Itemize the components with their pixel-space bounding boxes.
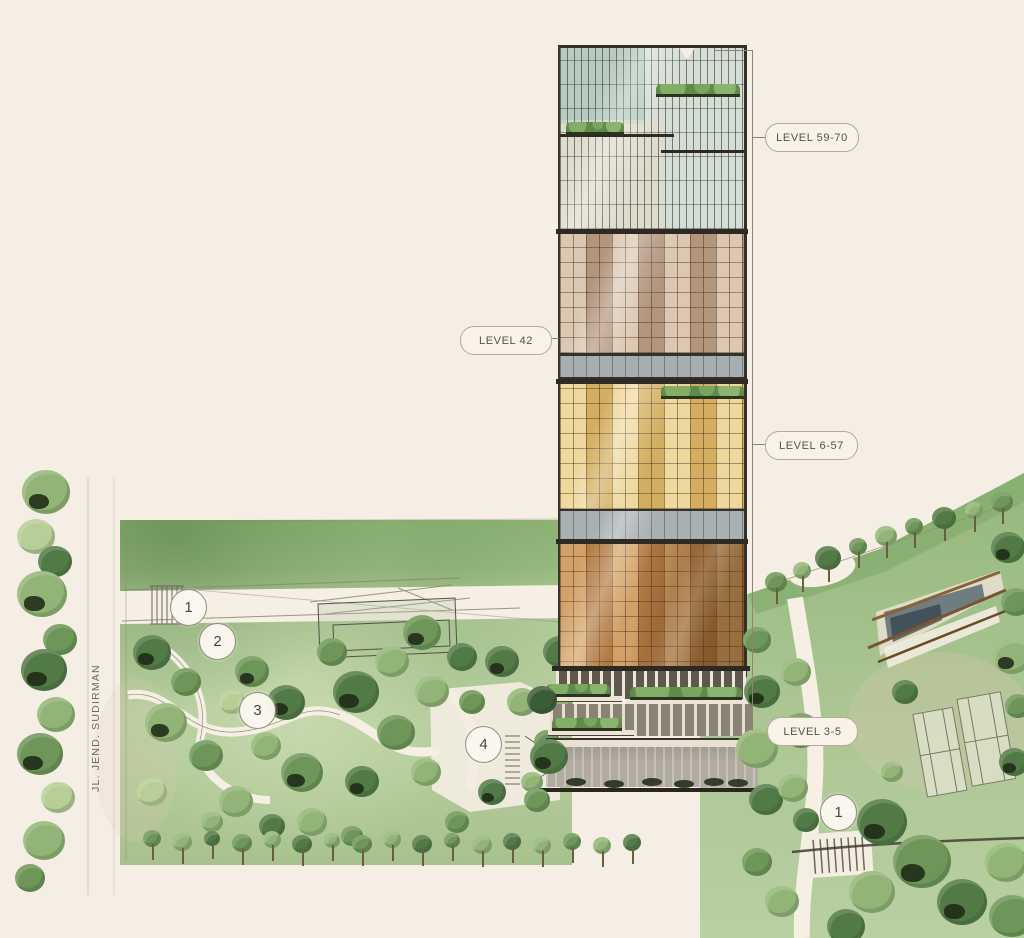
tree — [563, 833, 581, 850]
tree — [781, 658, 811, 686]
sky-terrace-planter — [566, 122, 625, 135]
tree — [472, 836, 492, 854]
tree — [849, 871, 895, 913]
site-marker-2: 2 — [199, 623, 236, 660]
roof-notch — [678, 46, 696, 60]
tree — [17, 571, 67, 617]
tree — [999, 748, 1024, 776]
tree — [412, 835, 432, 853]
tree — [403, 615, 441, 650]
tree — [447, 643, 477, 671]
tree — [1005, 694, 1024, 718]
sky-terrace-planter — [661, 386, 744, 399]
dimension-line — [714, 50, 752, 51]
tree — [383, 831, 401, 848]
tree — [459, 690, 485, 714]
tree — [17, 733, 63, 775]
tree — [778, 774, 808, 802]
tree — [251, 732, 281, 760]
tower-mechanical-band — [560, 509, 744, 539]
tree — [881, 762, 903, 782]
tree — [281, 753, 323, 792]
tree — [875, 526, 897, 546]
tree — [133, 635, 171, 670]
tree — [892, 680, 918, 704]
tree — [297, 808, 327, 836]
tennis-courts — [912, 692, 1016, 797]
shrub — [604, 780, 624, 788]
tree — [993, 639, 1024, 674]
tree — [232, 834, 252, 852]
shrub — [704, 778, 724, 786]
tree — [857, 799, 907, 845]
tree — [991, 532, 1024, 563]
tree — [23, 821, 65, 860]
tree — [985, 843, 1024, 882]
tree — [849, 538, 867, 555]
dimension-line — [752, 50, 753, 730]
shrub — [566, 778, 586, 786]
tower-podium — [546, 666, 758, 792]
callout-level-42: LEVEL 42 — [460, 326, 552, 355]
tree — [292, 835, 312, 853]
tree — [743, 627, 771, 653]
tree — [991, 492, 1013, 512]
tree — [411, 758, 441, 786]
callout-level-59-70: LEVEL 59-70 — [765, 123, 859, 152]
tree — [352, 835, 372, 853]
tree — [893, 835, 951, 888]
tree — [21, 649, 67, 691]
tree — [765, 572, 787, 592]
pavilion — [868, 570, 1008, 668]
tower — [558, 45, 747, 677]
tree — [143, 830, 161, 847]
tree — [793, 808, 819, 832]
tree — [172, 833, 192, 851]
tree — [444, 833, 460, 848]
site-marker-1b: 1 — [820, 794, 857, 831]
tree — [533, 837, 551, 854]
tree — [815, 546, 841, 570]
tree — [965, 502, 983, 519]
tree — [333, 671, 379, 713]
callout-level-3-5: LEVEL 3-5 — [767, 717, 858, 746]
tree — [445, 811, 469, 833]
sky-terrace-planter — [656, 84, 741, 97]
tree — [623, 834, 641, 851]
tree — [932, 507, 956, 529]
site-marker-1: 1 — [170, 589, 207, 626]
callout-level-6-57: LEVEL 6-57 — [765, 431, 858, 460]
illustration-canvas: LEVEL 59-70 LEVEL 42 LEVEL 6-57 LEVEL 3-… — [0, 0, 1024, 938]
site-marker-4: 4 — [465, 726, 502, 763]
tree — [22, 470, 70, 514]
tree — [263, 831, 281, 848]
tower-mechanical-band — [560, 353, 744, 379]
podium-planter — [630, 687, 742, 700]
tree — [15, 864, 45, 892]
shrub — [642, 778, 662, 786]
tree — [171, 668, 201, 696]
tree — [527, 686, 557, 714]
tree — [793, 562, 811, 579]
tower-mid-section — [560, 384, 744, 509]
tree — [201, 812, 223, 832]
tower-lower-section — [560, 544, 744, 677]
tree — [530, 739, 568, 774]
tree — [937, 879, 987, 925]
podium-planter — [552, 718, 622, 731]
tree — [317, 638, 347, 666]
tower-upper-section — [560, 234, 744, 353]
tree — [478, 779, 506, 805]
tree — [593, 837, 611, 854]
site-marker-3: 3 — [239, 692, 276, 729]
tree — [905, 518, 923, 535]
tree — [37, 697, 75, 732]
tree — [204, 831, 220, 846]
tree — [377, 715, 415, 750]
tree — [503, 833, 521, 850]
shrub — [674, 780, 694, 788]
shrub — [728, 779, 748, 787]
tree — [145, 703, 187, 742]
leader-line-6-57 — [752, 444, 765, 445]
tree — [742, 848, 772, 876]
leader-line-59-70 — [752, 137, 765, 138]
tree — [524, 788, 550, 812]
street-label: JL. JEND. SUDIRMAN — [90, 664, 102, 792]
tree — [324, 833, 340, 848]
tower-crown-section — [560, 45, 744, 229]
tree — [137, 778, 167, 806]
